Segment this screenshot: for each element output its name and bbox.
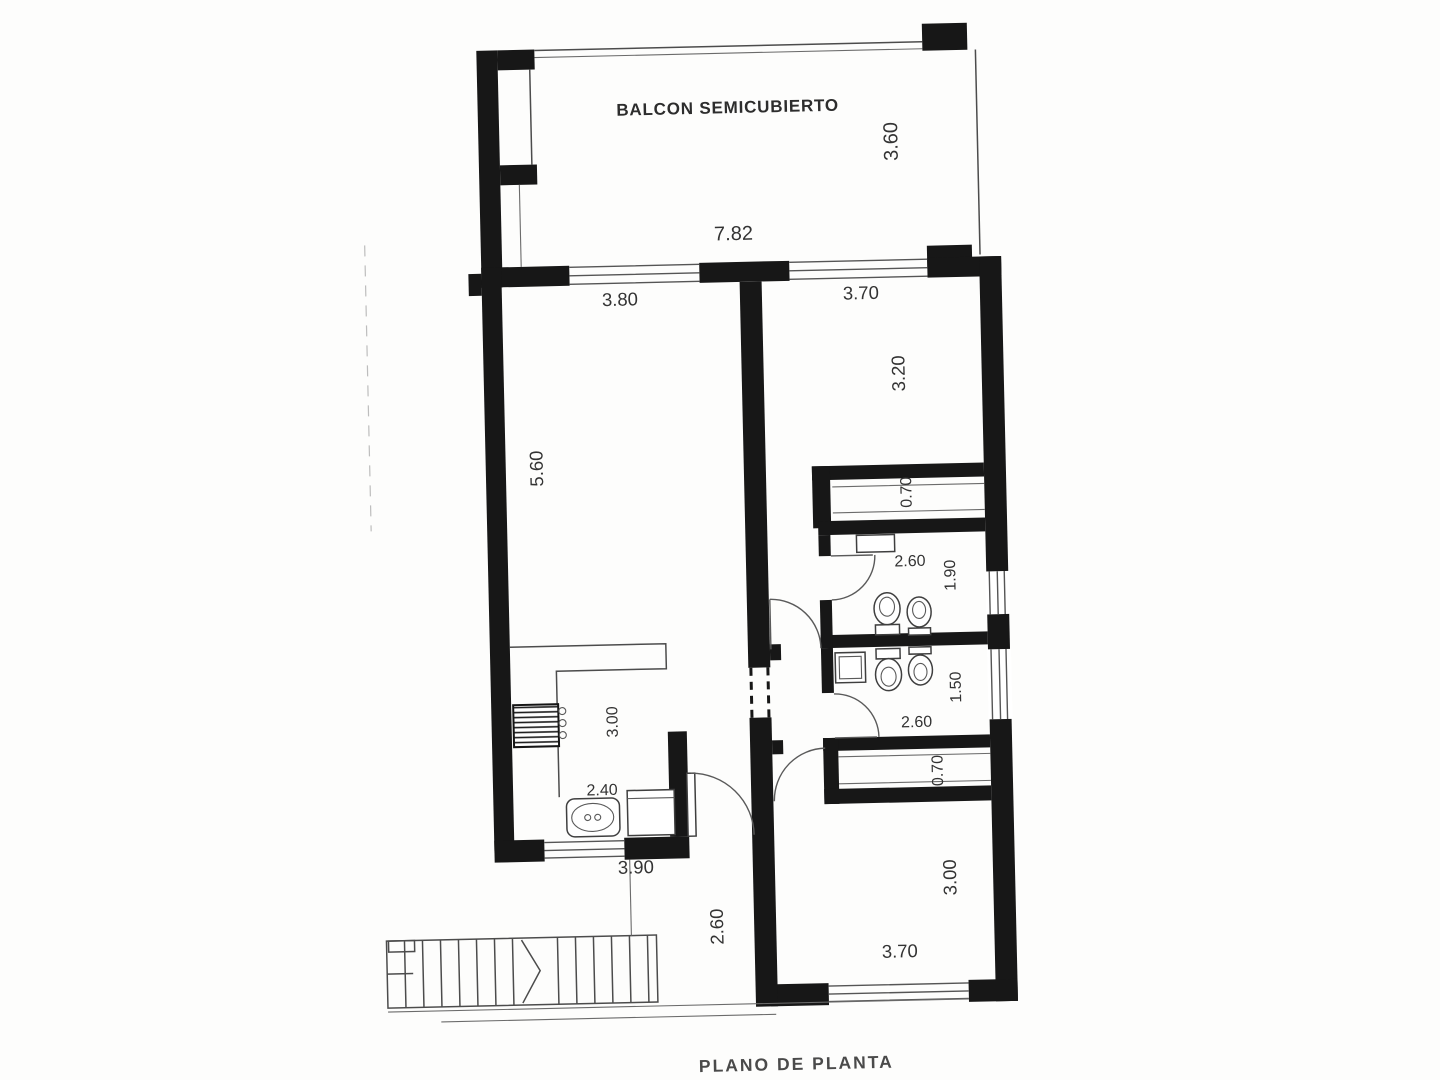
- balcony-top-edge-outer: [534, 42, 922, 51]
- toilet-tank: [876, 648, 900, 659]
- closet-bottom: [838, 753, 991, 783]
- dim-bathroom-top-depth: 1.90: [942, 559, 960, 591]
- central-wall-upper: [740, 281, 771, 667]
- closets-and-bathrooms: [767, 462, 992, 805]
- scanned-floor-plan-page: BALCON SEMICUBIERTO 3.60 7.82 3.80 3.70 …: [0, 0, 1440, 1080]
- vanity-fixture: [856, 535, 894, 553]
- bath-wall-seg2: [820, 600, 833, 648]
- dim-living-window: 3.80: [602, 288, 638, 310]
- stove-fixture: [513, 704, 559, 747]
- bidet-base: [908, 628, 930, 635]
- stairs-direction-chevron: [521, 940, 540, 1003]
- dim-kitchen-window: 3.90: [618, 856, 654, 878]
- balcony-recess-line: [530, 70, 532, 165]
- hallway-nub-bottom: [772, 740, 783, 754]
- balcony-floor-left-edge: [519, 185, 521, 267]
- dim-bathroom-top-width: 2.60: [894, 553, 926, 571]
- balcony-area: [476, 23, 981, 288]
- dim-bedroom-bottom-depth: 3.00: [939, 859, 961, 895]
- closet-top-end-wall: [812, 466, 831, 528]
- kitchen-appliance: [627, 790, 675, 836]
- dim-bedroom-top-depth: 3.20: [887, 355, 909, 391]
- central-wall-dashed-opening-right: [768, 667, 769, 717]
- hallway-door-arc: [770, 598, 821, 649]
- bedroom-top-window: [789, 259, 927, 279]
- dim-living-depth: 5.60: [525, 450, 547, 486]
- kitchen-wall-left-segment: [494, 840, 544, 863]
- dim-kitchen-length: 3.00: [604, 706, 622, 738]
- living-window: [569, 264, 699, 284]
- dim-kitchen-width: 2.40: [586, 782, 618, 800]
- balcony-left-top-stub: [497, 50, 534, 71]
- dim-bathroom-bottom-width: 2.60: [901, 714, 933, 732]
- kitchen-area: [510, 642, 754, 840]
- bathroom-top-door-leaf: [831, 555, 873, 556]
- dim-closet-bottom: 0.70: [929, 755, 947, 787]
- bath-wall-seg1: [818, 535, 830, 556]
- balcony-label: BALCON SEMICUBIERTO: [616, 96, 839, 120]
- bedroom-bottom-window: [829, 983, 969, 1002]
- dim-closet-top: 0.70: [898, 476, 916, 508]
- stairs-mid-line: [387, 974, 413, 975]
- central-wall-lower: [749, 717, 778, 1006]
- bedroom-bottom-door-arc: [773, 748, 826, 801]
- labels: BALCON SEMICUBIERTO 3.60 7.82 3.80 3.70 …: [517, 93, 973, 1080]
- entry-door-leaf: [687, 773, 696, 836]
- floor-plan-drawing: BALCON SEMICUBIERTO 3.60 7.82 3.80 3.70 …: [0, 0, 1440, 1080]
- stairs-outline: [386, 935, 657, 1008]
- bathroom-bottom-door-leaf: [835, 737, 877, 738]
- stove-knob: [559, 731, 566, 738]
- bathroom-bottom-lower-wall: [823, 734, 990, 751]
- dim-corridor: 2.60: [706, 908, 728, 944]
- bathroom-top-fixtures: [856, 534, 931, 637]
- right-exterior-wall: [979, 256, 1018, 1001]
- entry-door-arc: [691, 772, 754, 836]
- stairs-landing-detail: [388, 940, 414, 952]
- left-wall-nub: [468, 274, 481, 296]
- bathroom-top-door-arc: [831, 555, 876, 600]
- balcony-left-mid-stub: [500, 165, 537, 186]
- bathroom-bottom-fixtures: [835, 647, 933, 692]
- bathroom-bottom-window: [987, 649, 1013, 720]
- top-wall-center-pier: [699, 261, 789, 283]
- property-limit-dashed-line: [365, 245, 371, 531]
- toilet-tank: [875, 624, 899, 635]
- bathroom-top-window: [985, 571, 1010, 615]
- balcony-right-edge: [975, 50, 980, 255]
- hallway-door-leaf: [770, 599, 771, 649]
- dim-bathroom-bottom-depth: 1.50: [947, 671, 965, 703]
- left-exterior-wall: [481, 267, 514, 853]
- bedroom-bottom-top-wall: [824, 785, 991, 804]
- ground-line-short: [441, 1014, 776, 1022]
- bidet-base: [909, 647, 931, 654]
- stove-knob: [559, 719, 566, 726]
- bathroom-top-upper-wall: [818, 517, 985, 535]
- dim-balcony-depth: 3.60: [880, 122, 903, 161]
- balcony-left-wall: [476, 50, 502, 287]
- kitchen-window: [544, 841, 624, 858]
- dim-bedroom-bottom-width: 3.70: [882, 940, 918, 962]
- central-wall-dashed-opening-left: [751, 668, 752, 718]
- bath-wall-seg3: [821, 648, 834, 693]
- bottom-wall-right-segment: [968, 979, 1017, 1002]
- bathrooms-divider-wall: [821, 631, 988, 648]
- stove-knob: [559, 708, 566, 715]
- plan-title: PLANO DE PLANTA: [699, 1052, 894, 1076]
- balcony-top-edge-inner: [534, 49, 922, 58]
- balcony-top-right-pillar: [922, 23, 968, 51]
- bathroom-bottom-door-arc: [834, 693, 879, 738]
- plan-rotated-group: BALCON SEMICUBIERTO 3.60 7.82 3.80 3.70 …: [360, 22, 1021, 1080]
- dim-balcony-width: 7.82: [714, 223, 753, 246]
- dim-bedroom-top-window: 3.70: [843, 282, 879, 304]
